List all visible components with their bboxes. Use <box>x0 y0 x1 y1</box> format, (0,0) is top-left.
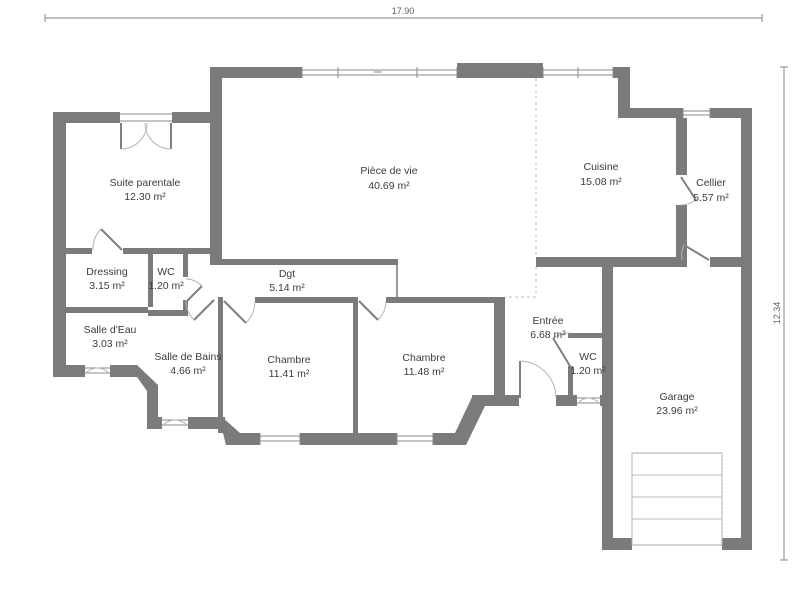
room-name: Cellier <box>696 177 726 189</box>
room-cuisine: Cuisine 15.08 m² <box>580 161 622 188</box>
floor-plan: 17.90 12.34 <box>0 0 805 600</box>
room-name: WC <box>579 351 597 363</box>
room-area: 4.66 m² <box>170 365 206 377</box>
room-name: Garage <box>659 391 694 403</box>
room-area: 5.14 m² <box>269 282 305 294</box>
room-area: 12.30 m² <box>124 191 166 203</box>
door-wc-1 <box>186 279 202 302</box>
dimension-right-label: 12.34 <box>772 302 782 325</box>
window-bay-living <box>302 67 457 78</box>
window-kitchen <box>543 67 613 78</box>
room-area: 1.20 m² <box>148 280 184 292</box>
open-boundary-dashes <box>505 78 536 297</box>
room-salle-d-eau: Salle d'Eau 3.03 m² <box>84 324 137 350</box>
room-area: 40.69 m² <box>368 180 410 192</box>
room-garage: Garage 23.96 m² <box>656 391 698 417</box>
room-area: 11.41 m² <box>269 368 310 380</box>
window-chambre-1 <box>260 433 300 445</box>
window-salle-de-bains <box>162 417 188 429</box>
room-name: Pièce de vie <box>360 165 417 177</box>
door-chambre-2 <box>359 301 386 320</box>
room-dgt: Dgt 5.14 m² <box>269 268 305 294</box>
door-entrance <box>520 361 556 398</box>
room-piece-de-vie: Pièce de vie 40.69 m² <box>360 165 417 192</box>
room-area: 11.48 m² <box>404 366 445 378</box>
room-labels: Suite parentale 12.30 m² Pièce de vie 40… <box>84 161 730 417</box>
door-dressing <box>93 229 122 250</box>
door-symbols <box>93 114 722 545</box>
room-chambre-1: Chambre 11.41 m² <box>267 354 310 380</box>
window-wc-2 <box>577 395 600 406</box>
room-name: Salle d'Eau <box>84 324 137 336</box>
floor-plan-canvas: 17.90 12.34 <box>0 0 805 600</box>
room-salle-de-bains: Salle de Bains 4.66 m² <box>154 351 221 377</box>
dimension-right: 12.34 <box>772 67 788 560</box>
room-area: 5.57 m² <box>693 192 729 204</box>
room-area: 23.96 m² <box>656 405 698 417</box>
interior-walls <box>66 248 602 433</box>
room-area: 1.20 m² <box>570 365 606 377</box>
room-name: Dressing <box>86 266 128 278</box>
room-name: Cuisine <box>583 161 618 173</box>
room-area: 6.68 m² <box>530 329 566 341</box>
room-name: Salle de Bains <box>154 351 221 363</box>
door-chambre-1 <box>224 301 255 323</box>
room-name: Suite parentale <box>110 177 181 189</box>
window-cellier <box>683 108 710 118</box>
window-symbols <box>85 67 710 445</box>
room-chambre-2: Chambre 11.48 m² <box>402 352 445 378</box>
room-cellier: Cellier 5.57 m² <box>693 177 729 204</box>
room-name: Chambre <box>402 352 445 364</box>
room-name: Entrée <box>533 315 564 327</box>
dimension-top-label: 17.90 <box>392 6 415 16</box>
room-entree: Entrée 6.68 m² <box>530 315 566 341</box>
room-dressing: Dressing 3.15 m² <box>86 266 128 292</box>
door-salle-de-bains <box>186 300 214 320</box>
room-area: 3.03 m² <box>92 338 128 350</box>
room-area: 15.08 m² <box>580 176 622 188</box>
dimension-top: 17.90 <box>45 6 762 22</box>
room-name: Dgt <box>279 268 295 280</box>
room-area: 3.15 m² <box>89 280 125 292</box>
window-salle-d-eau <box>85 365 110 377</box>
window-chambre-2 <box>397 433 433 445</box>
room-name: WC <box>157 266 175 278</box>
room-wc-1: WC 1.20 m² <box>148 266 184 292</box>
garage-door <box>632 453 722 545</box>
room-wc-2: WC 1.20 m² <box>570 351 606 377</box>
room-suite-parentale: Suite parentale 12.30 m² <box>110 177 181 203</box>
door-suite-parentale-double <box>120 114 172 149</box>
room-name: Chambre <box>267 354 310 366</box>
